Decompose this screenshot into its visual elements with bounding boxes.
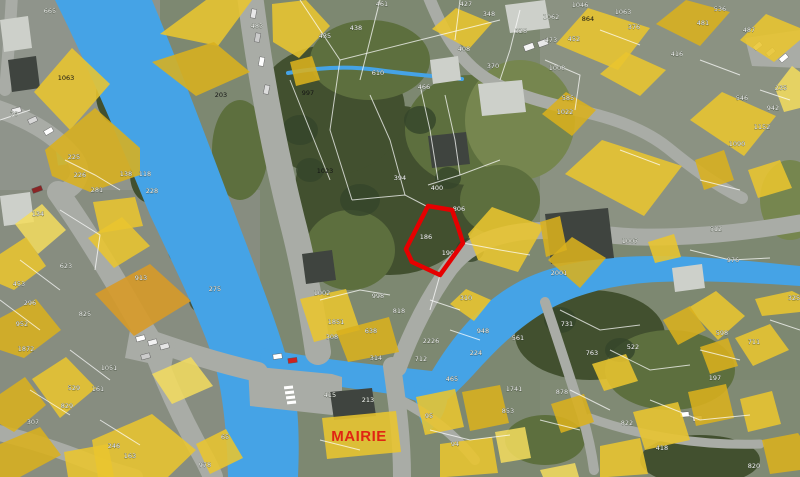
parcel-number-label: 307	[27, 418, 39, 426]
parcel-number-label: 1090	[729, 140, 746, 148]
parcel-number-label: 623	[60, 262, 72, 270]
parcel-number-label: 829	[61, 402, 73, 410]
parcel-number-label: 348	[483, 10, 495, 18]
parcel-number-label: 452	[568, 35, 580, 43]
parcel-number-label: 370	[487, 62, 499, 70]
parcel-number-label: 2001	[551, 269, 568, 277]
parcel-number-label: 1022	[557, 108, 574, 116]
parcel-number-label: 376	[628, 23, 640, 31]
parcel-number-label: 281	[91, 186, 103, 194]
parcel-number-label: 546	[736, 94, 748, 102]
parcel-number-label: 978	[199, 461, 211, 469]
parcel-number-label: 997	[302, 89, 314, 97]
parcel-number-label: 453	[13, 280, 25, 288]
parcel-number-label: 418	[656, 444, 668, 452]
parcel-number-label: 585	[562, 94, 574, 102]
parcel-number-label: 435	[319, 32, 331, 40]
parcel-number-label: 483	[251, 22, 263, 30]
parcel-number-label: 65	[221, 433, 229, 441]
parcel-number-label: 226	[74, 171, 86, 179]
parcel-number-label: 466	[418, 83, 430, 91]
parcel-number-label: 95	[425, 412, 433, 420]
parcel-number-label: 1063	[615, 8, 632, 16]
mairie-label: MAIRIE	[331, 428, 387, 445]
parcel-number-label: 731	[561, 320, 573, 328]
parcel-number-label: 1002	[314, 289, 331, 297]
parcel-number-label: 427	[460, 0, 472, 8]
parcel-number-label: 400	[431, 184, 443, 192]
parcel-number-label: 328	[515, 27, 527, 35]
parcel-number-label: 163	[124, 452, 136, 460]
parcel-number-label: 1046	[572, 1, 589, 9]
parcel-number-label: 415	[324, 391, 336, 399]
cadastral-map-view[interactable]: 6657010632032252261381182282814834354384…	[0, 0, 800, 477]
parcel-number-label: 1741	[506, 385, 523, 393]
parcel-number-label: 878	[556, 388, 568, 396]
parcel-number-label: 598	[716, 329, 728, 337]
parcel-number-label: 408	[458, 45, 470, 53]
parcel-number-label: 310	[460, 294, 472, 302]
parcel-number-label: 522	[627, 343, 639, 351]
parcel-number-label: 275	[209, 285, 221, 293]
parcel-number-label: 473	[545, 36, 557, 44]
parcel-number-label: 665	[44, 7, 56, 15]
parcel-number-label: 711	[748, 338, 760, 346]
parcel-number-label: 825	[79, 310, 91, 318]
parcel-number-label: 70	[10, 110, 18, 118]
parcel-number-label: 529	[68, 384, 80, 392]
parcel-number-label: 1872	[18, 345, 35, 353]
parcel-number-label: 998	[372, 292, 384, 300]
parcel-number-label: 296	[24, 299, 36, 307]
parcel-number-label: 394	[394, 174, 406, 182]
parcel-number-label: 438	[350, 24, 362, 32]
parcel-number-label: 314	[370, 354, 382, 362]
parcel-number-label: 952	[16, 320, 28, 328]
parcel-number-label: 138	[120, 170, 132, 178]
parcel-number-label: 1023	[317, 167, 334, 175]
parcel-number-label: 853	[502, 407, 514, 415]
parcel-number-label: 712	[415, 355, 427, 363]
parcel-number-label: 820	[748, 462, 760, 470]
parcel-number-label: 1063	[58, 74, 75, 82]
parcel-number-label: 2226	[423, 337, 440, 345]
parcel-number-label: 94	[451, 440, 459, 448]
parcel-number-label: 246	[108, 442, 120, 450]
parcel-number-label: 1008	[549, 64, 566, 72]
parcel-number-label: 224	[470, 349, 482, 357]
parcel-number-label: 561	[512, 334, 524, 342]
parcel-number-label: 481	[697, 19, 709, 27]
parcel-number-label: 1851	[328, 318, 345, 326]
parcel-number-label: 186	[420, 233, 432, 241]
parcel-number-label: 512	[710, 225, 722, 233]
parcel-number-label: 976	[727, 256, 739, 264]
parcel-number-label: 536	[714, 5, 726, 13]
parcel-number-label: 213	[362, 396, 374, 404]
parcel-number-label: 864	[582, 15, 594, 23]
map-canvas[interactable]: 6657010632032252261381182282814834354384…	[0, 0, 800, 477]
parcel-number-label: 465	[446, 375, 458, 383]
parcel-number-label: 203	[215, 91, 227, 99]
parcel-number-label: 948	[477, 327, 489, 335]
parcel-number-label: 461	[376, 0, 388, 8]
parcel-number-label: 942	[767, 104, 779, 112]
parcel-number-label: 325	[788, 294, 800, 302]
parcel-number-label: 913	[135, 274, 147, 282]
parcel-number-label: 134	[32, 210, 44, 218]
parcel-number-label: 1062	[543, 13, 560, 21]
parcel-number-label: 487	[743, 26, 755, 34]
parcel-number-label: 235	[775, 84, 787, 92]
parcel-number-label: 1051	[101, 364, 118, 372]
parcel-number-label: 197	[709, 374, 721, 382]
parcel-number-label: 225	[68, 153, 80, 161]
parcel-number-label: 822	[621, 419, 633, 427]
parcel-number-label: 228	[146, 187, 158, 195]
parcel-number-label: 308	[326, 333, 338, 341]
parcel-number-label: 416	[671, 50, 683, 58]
parcel-number-label: 118	[139, 170, 151, 178]
parcel-number-label: 1007	[622, 237, 639, 245]
parcel-number-label: 638	[365, 327, 377, 335]
parcel-number-label: 763	[586, 349, 598, 357]
parcel-number-label: 818	[393, 307, 405, 315]
parcel-number-label: 161	[92, 385, 104, 393]
parcel-number-label: 1152	[754, 123, 771, 131]
parcel-number-label: 610	[372, 69, 384, 77]
